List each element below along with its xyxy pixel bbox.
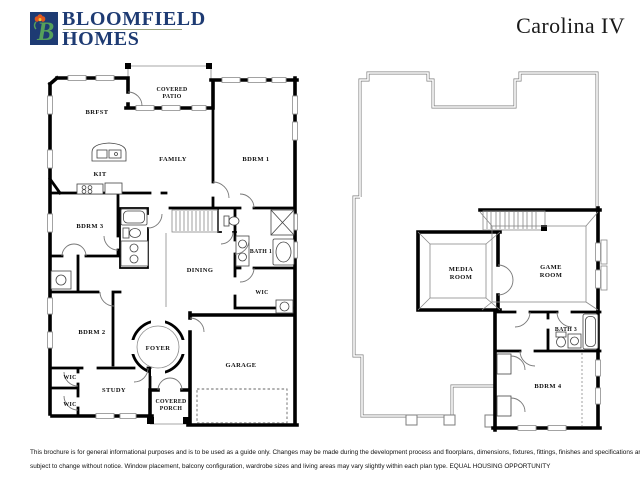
room-label-kit: KIT <box>93 171 106 178</box>
washer-icon <box>56 275 66 285</box>
staircase-floor2 <box>483 211 547 231</box>
room-label-covered-porch: COVERED <box>155 399 186 405</box>
floorplan-canvas: COVERED PATIO BRFST FAMILY KIT BDRM 1 BD… <box>0 0 640 495</box>
room-label-foyer: FOYER <box>146 345 171 352</box>
sink-icon <box>239 240 247 248</box>
kitchen-counter <box>105 183 122 194</box>
room-label-wic-master: WIC <box>255 290 268 296</box>
toilet-icon <box>123 228 129 238</box>
room-label-media-room: MEDIA <box>449 266 473 273</box>
room-label-game-room: GAME <box>540 264 562 271</box>
room-label-wic-upper: WIC <box>63 375 76 381</box>
room-label-bdrm2: BDRM 2 <box>78 329 105 336</box>
room-label-family: FAMILY <box>159 156 187 163</box>
sink-icon <box>239 253 247 261</box>
garage-door-dashed <box>197 389 287 423</box>
room-label-bdrm1: BDRM 1 <box>242 156 269 163</box>
staircase-floor1 <box>172 210 218 232</box>
room-label-dining: DINING <box>187 267 214 274</box>
first-floor-plan: COVERED PATIO BRFST FAMILY KIT BDRM 1 BD… <box>48 63 298 425</box>
hall-bath-fixtures <box>121 209 148 266</box>
covered-patio-structure <box>125 63 212 80</box>
disclaimer-line1: This brochure is for general information… <box>30 446 618 460</box>
patio-outline <box>128 66 211 80</box>
powder-toilet-icon <box>224 216 239 226</box>
room-label-brfst: BRFST <box>86 109 109 116</box>
room-label-media-room: ROOM <box>450 274 473 281</box>
tub-icon <box>276 242 291 262</box>
sink-icon <box>571 337 579 345</box>
master-bath-fixtures <box>236 210 294 266</box>
room-label-study: STUDY <box>102 387 126 394</box>
disclaimer-line2: subject to change without notice. Window… <box>30 460 618 474</box>
floor2-footprint-outline <box>354 73 597 427</box>
room-label-bdrm3: BDRM 3 <box>76 223 103 230</box>
covered-porch-structure <box>147 417 190 424</box>
room-label-bdrm4: BDRM 4 <box>534 383 561 390</box>
kitchen-range <box>77 184 103 194</box>
room-label-garage: GARAGE <box>226 362 257 369</box>
room-label-covered-porch: PORCH <box>160 406 183 412</box>
patio-post <box>206 63 212 69</box>
room-label-bath1: BATH 1 <box>250 249 272 255</box>
laundry-fixtures <box>51 271 71 289</box>
sink-icon <box>130 244 138 252</box>
tub-icon <box>124 211 145 223</box>
tub-icon <box>586 317 596 347</box>
room-label-covered-patio: COVERED <box>156 87 187 93</box>
sink-icon <box>130 255 138 263</box>
floor2-window-bays <box>601 240 607 290</box>
kitchen-island <box>92 143 126 161</box>
room-label-covered-patio: PATIO <box>163 94 182 100</box>
room-label-bath3: BATH 3 <box>555 327 577 333</box>
room-label-wic-lower: WIC <box>63 402 76 408</box>
second-floor-plan: MEDIA ROOM GAME ROOM BATH 3 BDRM 4 <box>354 73 607 431</box>
water-heater-icon <box>276 300 293 313</box>
disclaimer: This brochure is for general information… <box>30 446 618 474</box>
room-label-game-room: ROOM <box>540 272 563 279</box>
patio-post <box>125 63 131 69</box>
